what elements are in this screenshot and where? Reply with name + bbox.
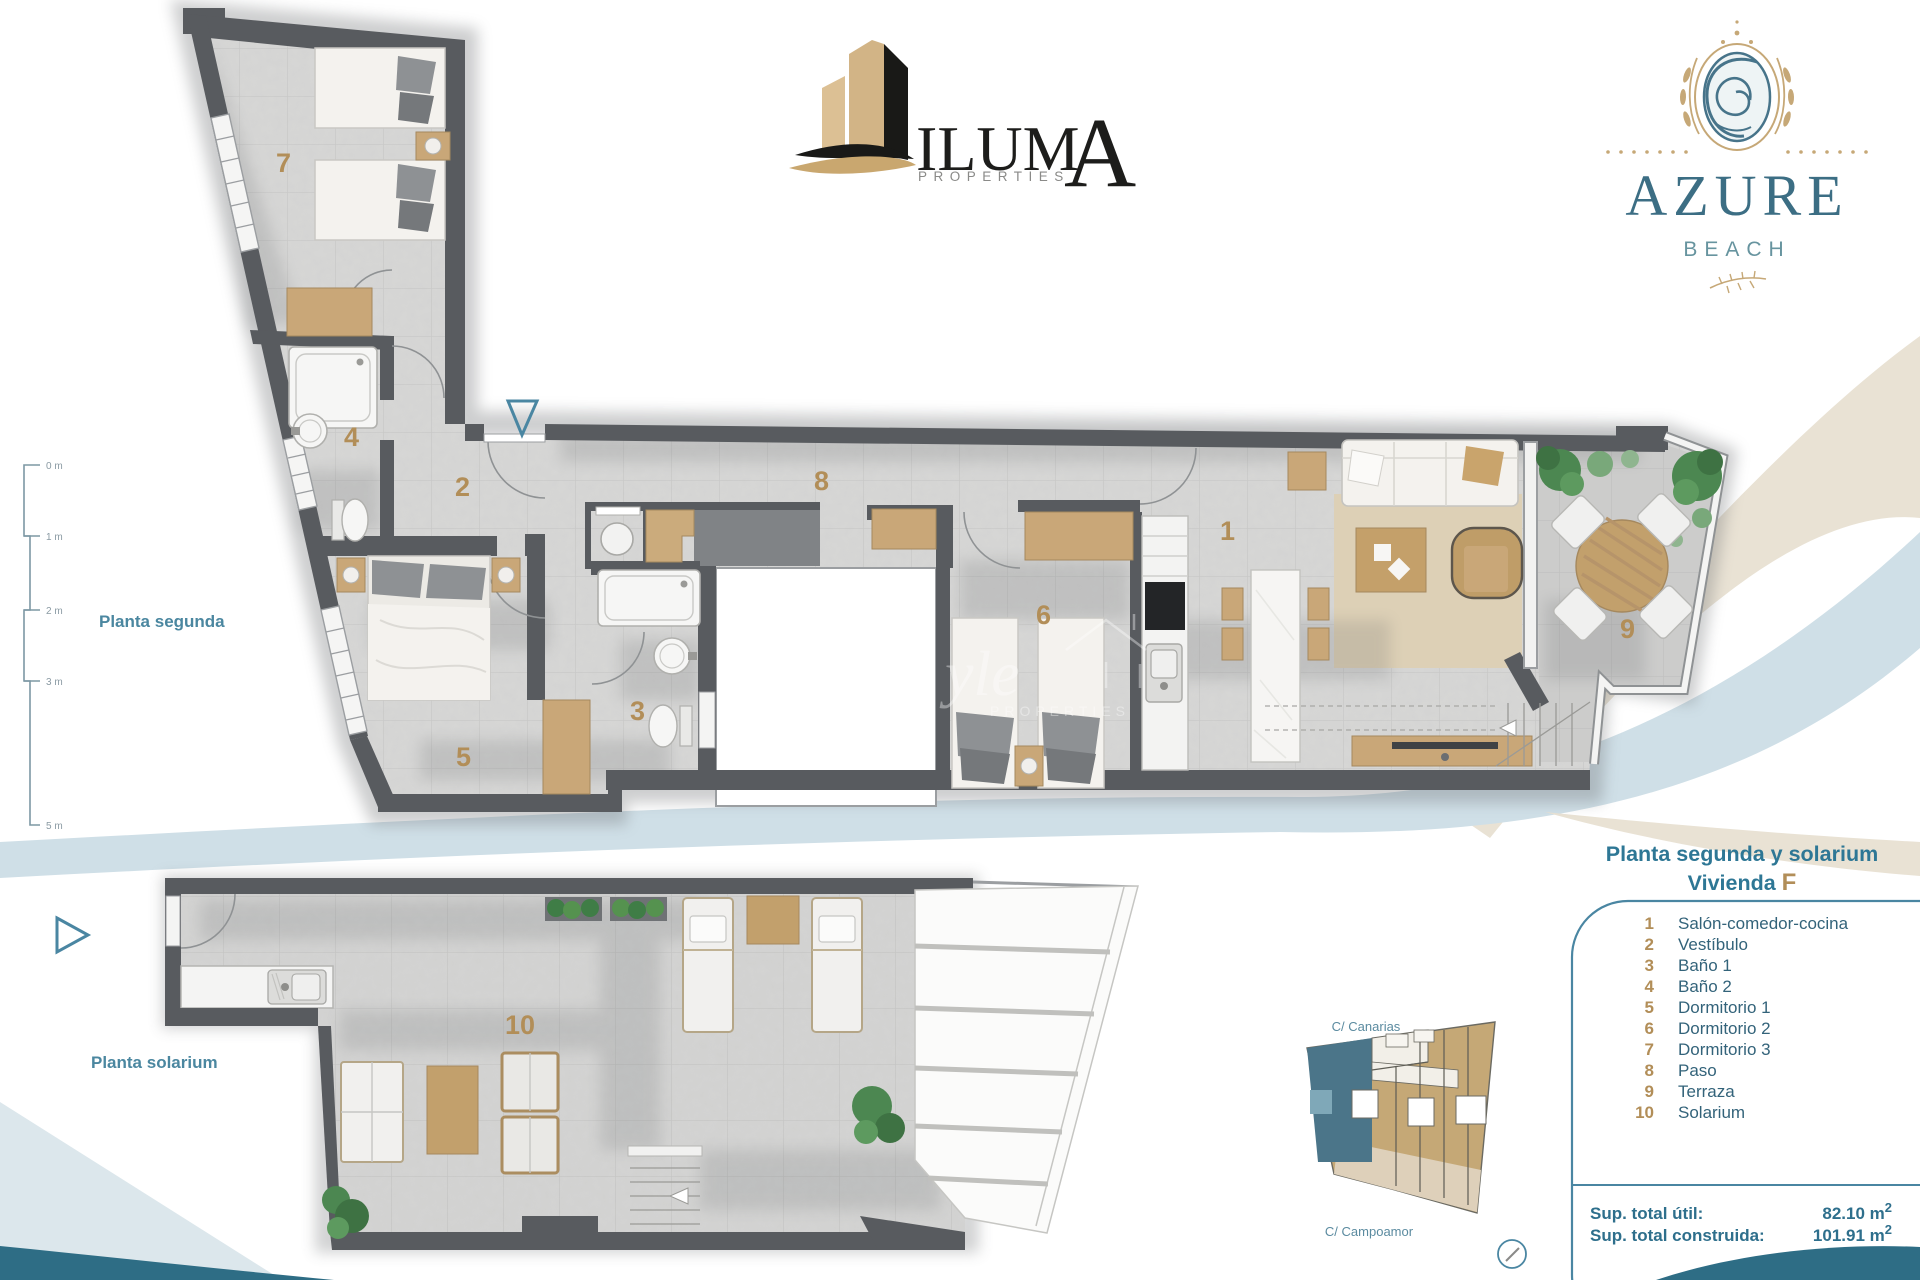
- svg-text:2: 2: [455, 472, 470, 502]
- svg-text:5: 5: [456, 742, 471, 772]
- svg-text:Dormitorio 2: Dormitorio 2: [1678, 1019, 1771, 1038]
- svg-text:10: 10: [505, 1010, 535, 1040]
- svg-text:Dormitorio 1: Dormitorio 1: [1678, 998, 1771, 1017]
- svg-text:6: 6: [1645, 1019, 1654, 1038]
- svg-text:A: A: [1064, 97, 1136, 208]
- svg-text:101.91 m2: 101.91 m2: [1813, 1222, 1892, 1245]
- svg-text:9: 9: [1645, 1082, 1654, 1101]
- svg-text:Baño 2: Baño 2: [1678, 977, 1732, 996]
- svg-text:C/ Campoamor: C/ Campoamor: [1325, 1224, 1414, 1239]
- svg-text:BEACH: BEACH: [1683, 238, 1790, 261]
- svg-text:PROPERTIES: PROPERTIES: [918, 169, 1070, 184]
- svg-text:82.10 m2: 82.10 m2: [1822, 1200, 1892, 1223]
- svg-text:8: 8: [1645, 1061, 1654, 1080]
- svg-text:3: 3: [1645, 956, 1654, 975]
- svg-text:2: 2: [1645, 935, 1654, 954]
- svg-text:Dormitorio 3: Dormitorio 3: [1678, 1040, 1771, 1059]
- svg-text:3 m: 3 m: [46, 677, 63, 688]
- svg-text:Baño 1: Baño 1: [1678, 956, 1732, 975]
- svg-text:2 m: 2 m: [46, 606, 63, 617]
- svg-text:Planta segunda y solarium: Planta segunda y solarium: [1606, 842, 1878, 866]
- svg-text:4: 4: [344, 422, 359, 452]
- svg-text:Vivienda F: Vivienda F: [1688, 869, 1797, 896]
- svg-text:10: 10: [1635, 1103, 1654, 1122]
- svg-text:7: 7: [1645, 1040, 1654, 1059]
- svg-text:7: 7: [276, 148, 291, 178]
- svg-text:1: 1: [1645, 914, 1654, 933]
- svg-text:6: 6: [1036, 600, 1051, 630]
- svg-text:Planta solarium: Planta solarium: [91, 1053, 218, 1072]
- svg-text:3: 3: [630, 696, 645, 726]
- svg-text:8: 8: [814, 466, 829, 496]
- svg-text:Sup. total construida:: Sup. total construida:: [1590, 1226, 1765, 1245]
- svg-text:Salón-comedor-cocina: Salón-comedor-cocina: [1678, 914, 1849, 933]
- svg-text:yle: yle: [939, 638, 1020, 709]
- svg-text:Vestíbulo: Vestíbulo: [1678, 935, 1748, 954]
- svg-text:Solarium: Solarium: [1678, 1103, 1745, 1122]
- svg-text:C/ Canarias: C/ Canarias: [1332, 1019, 1401, 1034]
- svg-text:5: 5: [1645, 998, 1654, 1017]
- svg-text:Terraza: Terraza: [1678, 1082, 1735, 1101]
- svg-text:4: 4: [1645, 977, 1655, 996]
- svg-text:PROPERTIES: PROPERTIES: [990, 703, 1130, 719]
- svg-text:1: 1: [1220, 516, 1235, 546]
- svg-text:Planta segunda: Planta segunda: [99, 612, 225, 631]
- svg-text:Paso: Paso: [1678, 1061, 1717, 1080]
- svg-text:0 m: 0 m: [46, 461, 63, 472]
- svg-text:1 m: 1 m: [46, 532, 63, 543]
- svg-text:Sup. total útil:: Sup. total útil:: [1590, 1204, 1703, 1223]
- svg-text:5 m: 5 m: [46, 821, 63, 832]
- svg-text:9: 9: [1620, 614, 1635, 644]
- svg-text:AZURE: AZURE: [1625, 163, 1848, 228]
